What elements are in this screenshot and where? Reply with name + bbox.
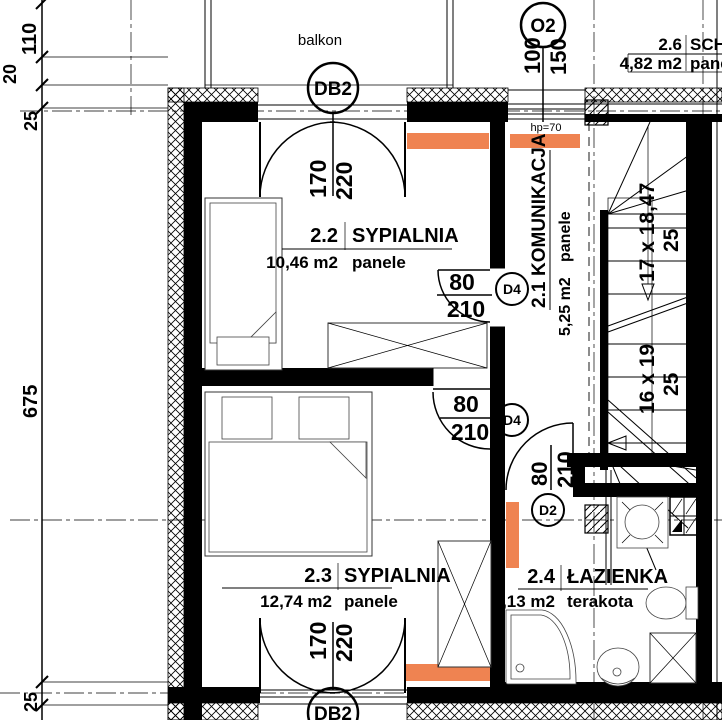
room-number: 2.4 [527, 566, 556, 588]
stairs-width-down-label: 25 [660, 372, 683, 396]
door-width-label: 80 [527, 462, 552, 486]
wardrobe-bedroom-22 [328, 323, 487, 368]
room-floor: panele [344, 592, 398, 611]
door-tag: DB2 [314, 79, 352, 100]
room-number-name: 2.1 [529, 281, 550, 308]
room-area: 4,82 m2 [620, 54, 682, 73]
door-tag: D2 [539, 502, 557, 518]
stair-side-wall [600, 210, 608, 470]
washing-machine [617, 497, 668, 548]
door-height-label: 220 [331, 624, 357, 662]
dimension-label: 25 [21, 692, 41, 712]
shower-cabin [650, 633, 696, 683]
room-floor: terakota [567, 592, 634, 611]
sink [597, 648, 639, 686]
door-width-label: 170 [305, 622, 331, 660]
room-floor: panele [352, 253, 406, 272]
bed-double [205, 392, 372, 556]
sill-height-note: hp=70 [531, 122, 562, 134]
room-name: SYPIALNIA [344, 565, 451, 587]
dimension-label: 675 [20, 385, 42, 418]
room-number: 2.2 [310, 225, 338, 247]
toilet [646, 587, 698, 619]
door-width-label: 170 [305, 160, 331, 198]
stairs-flight-up-label: 17 x 18,47 [636, 183, 659, 282]
room-name: KOMUNIKACJA [529, 133, 550, 276]
door-tag: D4 [503, 412, 521, 428]
room-area: 5,13 m2 [493, 592, 555, 611]
door-width-label: 80 [453, 391, 479, 417]
dimension-label: 20 [0, 64, 20, 84]
room-area: 12,74 m2 [260, 592, 332, 611]
door-height-label: 220 [331, 162, 357, 200]
dimension-label: 110 [19, 23, 41, 55]
room-area: 5,25 m2 [557, 277, 574, 336]
floor-plan: balkon [0, 0, 722, 720]
floor-plan-svg: balkon [0, 0, 722, 720]
door-tag: D4 [503, 281, 521, 297]
dimension-label: 25 [21, 111, 41, 131]
room-number: 2.6 [658, 35, 682, 54]
room-name: SCH [690, 35, 722, 54]
room-floor: pane [690, 54, 722, 73]
bed-single [205, 198, 282, 370]
door-height-label: 210 [451, 419, 489, 445]
door-tag: DB2 [314, 704, 352, 720]
window-height-label: 150 [546, 38, 571, 75]
radiator-bathroom [506, 502, 519, 568]
room-floor: panele [557, 211, 574, 262]
balcony-label: balkon [298, 32, 342, 49]
door-height-label: 210 [553, 451, 578, 488]
room-name: ŁAZIENKA [567, 566, 668, 588]
room-name: SYPIALNIA [352, 225, 459, 247]
radiator-bedroom-22 [407, 133, 489, 149]
wall-pier-hatched [585, 100, 608, 125]
window-tag: O2 [530, 16, 555, 37]
room-number: 2.3 [304, 565, 332, 587]
window-width-label: 100 [520, 37, 545, 74]
room-area: 10,46 m2 [266, 253, 338, 272]
stairs-flight-down-label: 16 x 19 [636, 344, 659, 414]
wardrobe-bedroom-23 [438, 541, 491, 667]
door-width-label: 80 [449, 269, 475, 295]
door-height-label: 210 [447, 296, 485, 322]
stairs-width-up-label: 25 [660, 228, 683, 252]
duct-shaft [585, 505, 608, 533]
